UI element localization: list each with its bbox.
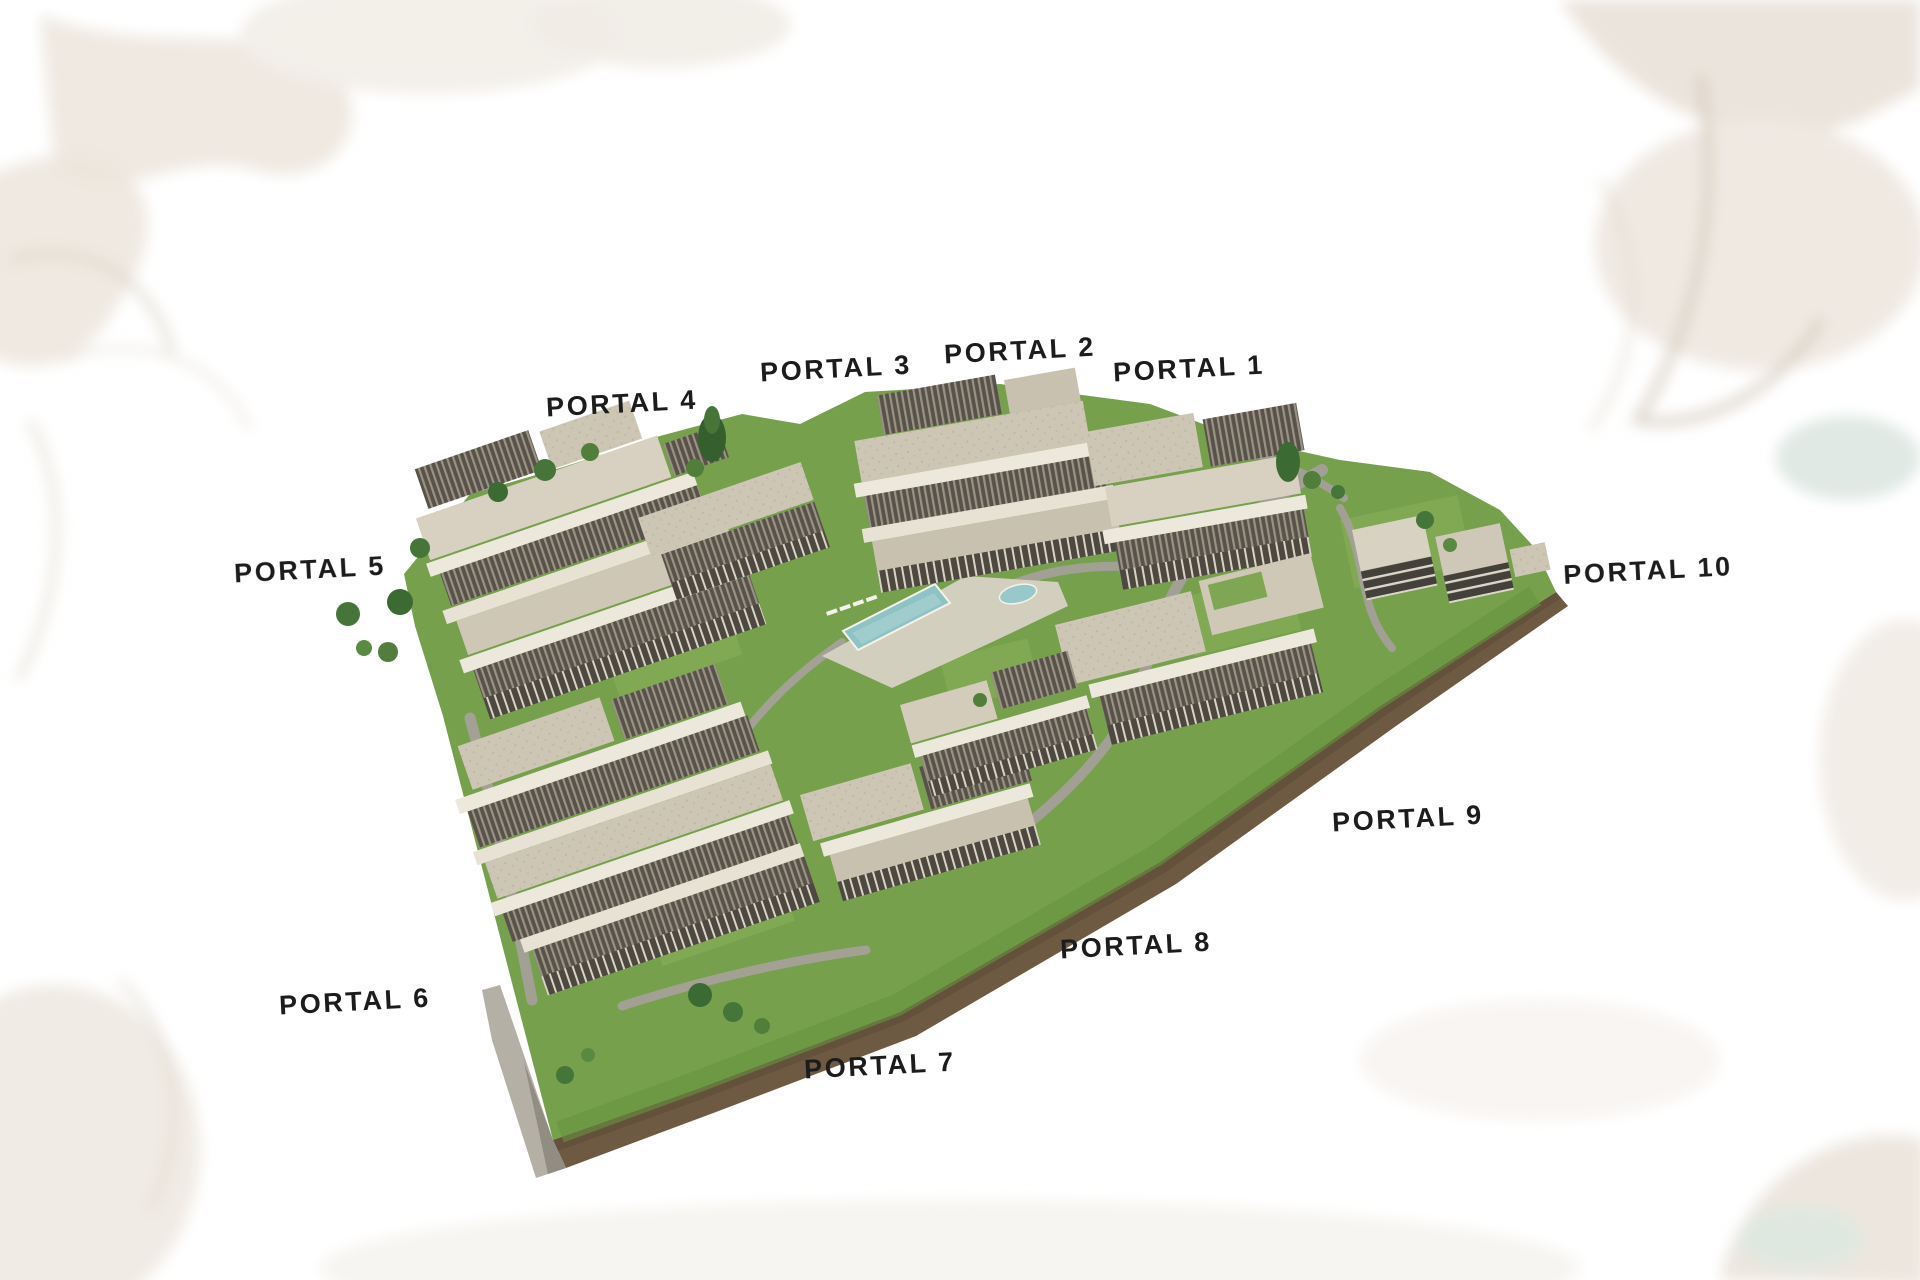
- site-rendering: [0, 0, 1920, 1280]
- masterplan-page: PORTAL 1 PORTAL 2 PORTAL 3 PORTAL 4 PORT…: [0, 0, 1920, 1280]
